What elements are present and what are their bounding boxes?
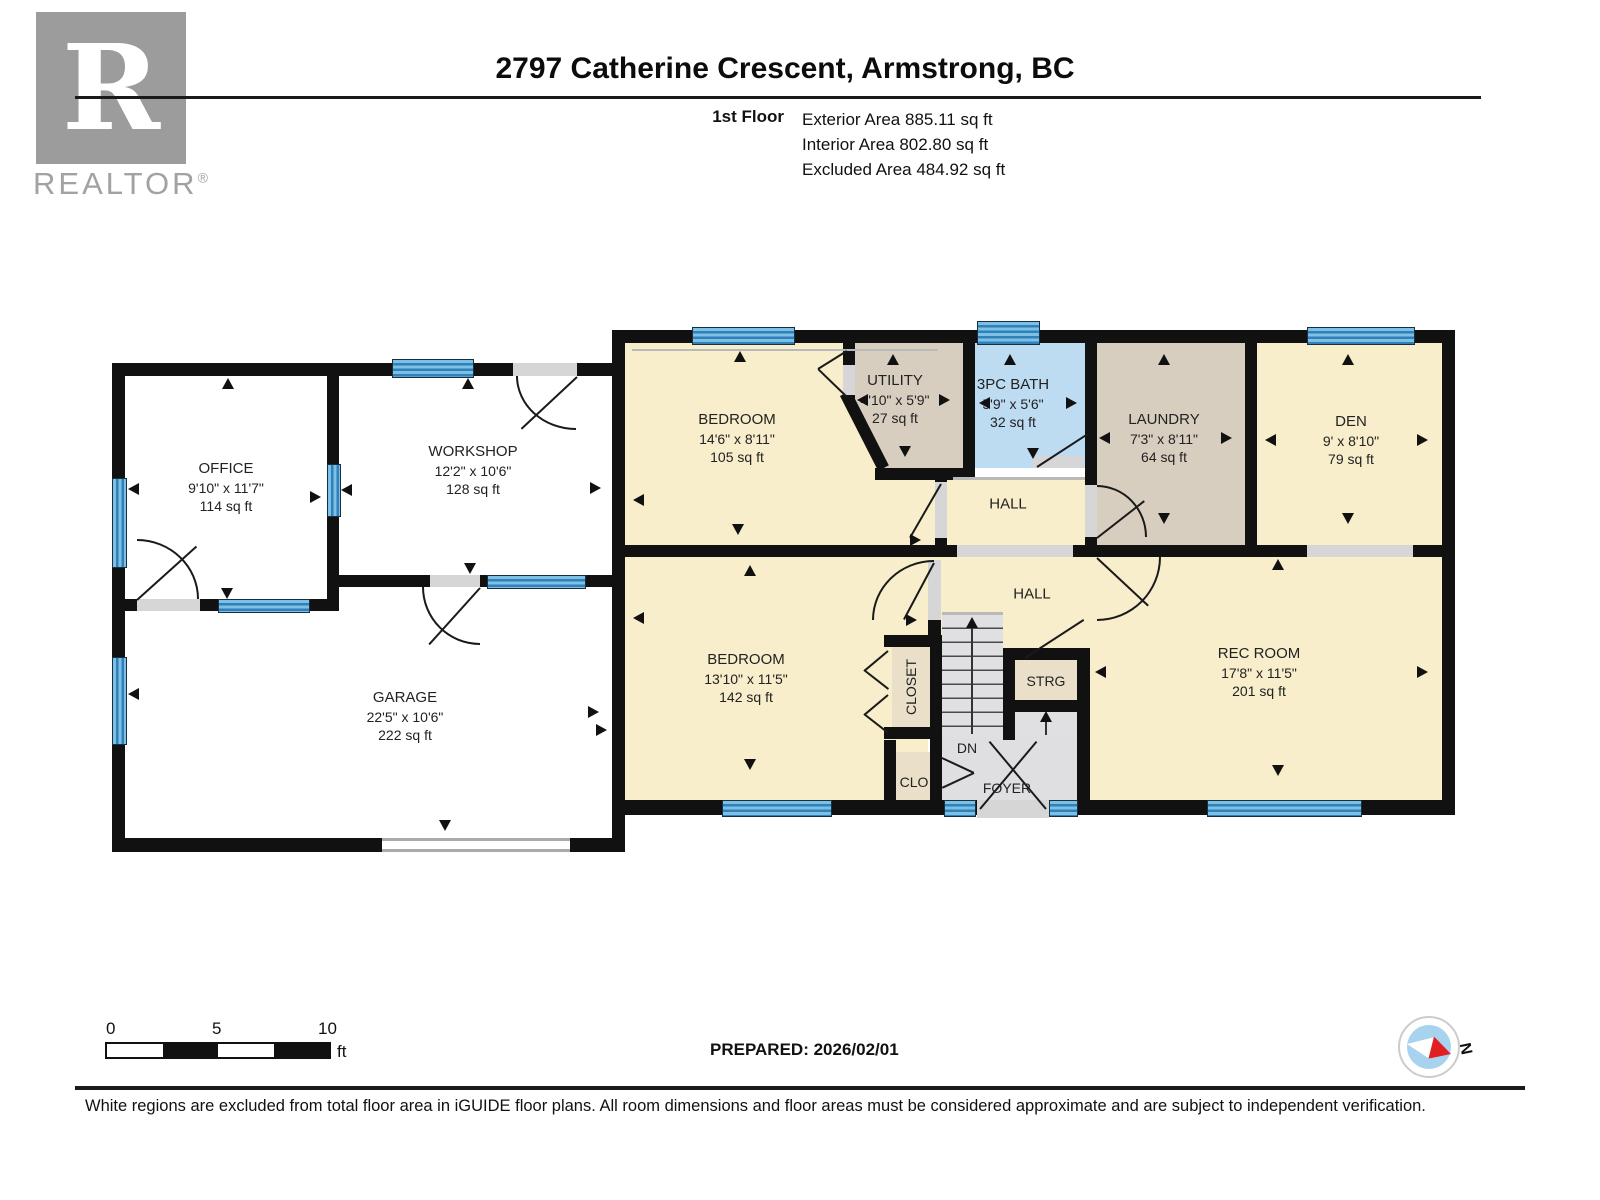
room-name: CLOSET (902, 659, 920, 715)
room-dims: 9' x 8'10" (1323, 432, 1379, 450)
room-name: DEN (1323, 412, 1379, 432)
room-label-clo: CLO (900, 773, 929, 791)
room-label-garage: GARAGE 22'5" x 10'6" 222 sq ft (367, 688, 444, 744)
room-name: HALL (1013, 584, 1051, 604)
room-label-foyer: FOYER (983, 779, 1031, 797)
room-label-hall-upper: HALL (989, 494, 1027, 514)
room-name: BEDROOM (698, 410, 776, 430)
realtor-logo-letter: R (62, 29, 160, 147)
room-name: FOYER (983, 779, 1031, 797)
window (327, 464, 341, 517)
dim-arrow-icon (633, 494, 644, 506)
door-opening (513, 363, 577, 376)
dim-arrow-icon (1272, 559, 1284, 570)
compass-icon (1398, 1016, 1460, 1078)
door-opening (137, 599, 200, 611)
landing-up-arrow-icon (1040, 711, 1052, 722)
scale-unit: ft (337, 1042, 346, 1062)
room-name: OFFICE (188, 459, 264, 479)
page-title: 2797 Catherine Crescent, Armstrong, BC (0, 52, 1570, 86)
dim-arrow-icon (857, 394, 868, 406)
dim-arrow-icon (1342, 513, 1354, 524)
scale-segment (218, 1044, 274, 1057)
compass-needle-tail (1403, 1027, 1455, 1067)
window (692, 327, 795, 345)
dim-arrow-icon (439, 820, 451, 831)
room-area: 201 sq ft (1218, 682, 1301, 700)
window (977, 321, 1040, 345)
dim-arrow-icon (939, 394, 950, 406)
window (1207, 800, 1362, 817)
room-name: HALL (989, 494, 1027, 514)
dim-arrow-icon (633, 612, 644, 624)
room-name: REC ROOM (1218, 644, 1301, 664)
room-area: 222 sq ft (367, 726, 444, 744)
ceiling-break (632, 349, 938, 351)
scale-tick-5: 5 (212, 1019, 221, 1039)
floor-plan: OFFICE 9'10" x 11'7" 114 sq ft WORKSHOP … (0, 0, 1600, 1200)
room-area: 105 sq ft (698, 448, 776, 466)
dim-arrow-icon (310, 491, 321, 503)
dim-arrow-icon (222, 378, 234, 389)
room-label-workshop: WORKSHOP 12'2" x 10'6" 128 sq ft (428, 442, 517, 498)
room-label-strg: STRG (1027, 672, 1066, 690)
dim-arrow-icon (1221, 432, 1232, 444)
room-label-hall-lower: HALL (1013, 584, 1051, 604)
room-label-bedroom1: BEDROOM 14'6" x 8'11" 105 sq ft (698, 410, 776, 466)
room-area: 32 sq ft (977, 413, 1049, 431)
dim-arrow-icon (899, 446, 911, 457)
dim-arrow-icon (744, 759, 756, 770)
wall (963, 330, 975, 480)
dim-arrow-icon (1272, 765, 1284, 776)
dim-arrow-icon (732, 524, 744, 535)
door-opening (1085, 485, 1097, 537)
dim-arrow-icon (1265, 434, 1276, 446)
stair-direction-line (971, 622, 973, 734)
footer-divider (75, 1086, 1525, 1090)
dim-arrow-icon (887, 354, 899, 365)
disclaimer-text: White regions are excluded from total fl… (85, 1097, 1515, 1116)
hall-edge (953, 477, 1085, 480)
room-area: 64 sq ft (1128, 448, 1199, 466)
dim-arrow-icon (1099, 432, 1110, 444)
dim-arrow-icon (596, 724, 607, 736)
dim-arrow-icon (1095, 666, 1106, 678)
scale-tick-10: 10 (318, 1019, 337, 1039)
room-dims: 13'10" x 11'5" (704, 670, 788, 688)
title-divider (75, 96, 1481, 99)
window (722, 800, 832, 817)
room-dims: 14'6" x 8'11" (698, 430, 776, 448)
room-label-den: DEN 9' x 8'10" 79 sq ft (1323, 412, 1379, 468)
room-dims: 17'8" x 11'5" (1218, 664, 1301, 682)
room-label-rec-room: REC ROOM 17'8" x 11'5" 201 sq ft (1218, 644, 1301, 700)
registered-mark: ® (198, 170, 211, 186)
door-opening (843, 365, 855, 395)
room-name: STRG (1027, 672, 1066, 690)
wall-opening (957, 545, 1073, 557)
room-dims: 7'3" x 8'11" (1128, 430, 1199, 448)
dim-arrow-icon (1004, 354, 1016, 365)
dim-arrow-icon (341, 484, 352, 496)
dim-arrow-icon (128, 483, 139, 495)
realtor-logo-text: REALTOR (33, 166, 198, 201)
wall (1245, 330, 1257, 557)
door-opening (430, 575, 480, 587)
window (487, 575, 586, 589)
dim-arrow-icon (734, 351, 746, 362)
dim-arrow-icon (910, 534, 921, 546)
dim-arrow-icon (1417, 434, 1428, 446)
wall (1442, 330, 1455, 815)
room-name: GARAGE (367, 688, 444, 708)
room-area: 128 sq ft (428, 480, 517, 498)
room-name: BEDROOM (704, 650, 788, 670)
stair-up-arrow-icon (966, 617, 978, 628)
realtor-logo-icon: R (36, 12, 186, 164)
room-dims: 12'2" x 10'6" (428, 462, 517, 480)
dim-arrow-icon (1158, 513, 1170, 524)
dim-arrow-icon (1417, 666, 1428, 678)
dim-arrow-icon (1342, 354, 1354, 365)
room-name: DN (957, 739, 977, 757)
scale-segment (274, 1044, 330, 1057)
dim-arrow-icon (744, 565, 756, 576)
dim-arrow-icon (128, 688, 139, 700)
scale-bar (105, 1042, 331, 1059)
dim-arrow-icon (1027, 448, 1039, 459)
wall (1003, 648, 1015, 740)
room-name: UTILITY (861, 371, 930, 391)
window (392, 359, 474, 378)
window (944, 800, 976, 817)
compass-needle-icon (1403, 1027, 1455, 1067)
room-label-office: OFFICE 9'10" x 11'7" 114 sq ft (188, 459, 264, 515)
room-name: CLO (900, 773, 929, 791)
wall-opening (1307, 545, 1413, 557)
dim-arrow-icon (1066, 397, 1077, 409)
room-label-utility: UTILITY 4'10" x 5'9" 27 sq ft (861, 371, 930, 427)
prepared-date: PREPARED: 2026/02/01 (710, 1040, 899, 1060)
room-label-laundry: LAUNDRY 7'3" x 8'11" 64 sq ft (1128, 410, 1199, 466)
window (112, 478, 127, 568)
dim-arrow-icon (588, 706, 599, 718)
room-area: 79 sq ft (1323, 450, 1379, 468)
dim-arrow-icon (906, 614, 917, 626)
floorplan-page: R REALTOR® 2797 Catherine Crescent, Arms… (0, 0, 1600, 1200)
realtor-logo-label: REALTOR® (33, 166, 211, 202)
window (1049, 800, 1078, 817)
wall (884, 740, 896, 800)
room-label-closet: CLOSET (902, 659, 920, 715)
front-door-opening (977, 800, 1049, 818)
scale-segment (107, 1044, 163, 1057)
dim-arrow-icon (462, 378, 474, 389)
window (112, 657, 127, 745)
room-name: 3PC BATH (977, 375, 1049, 395)
room-dims: 9'10" x 11'7" (188, 479, 264, 497)
scale-tick-0: 0 (106, 1019, 115, 1039)
wall (612, 330, 625, 852)
dim-arrow-icon (979, 397, 990, 409)
room-area: 27 sq ft (861, 409, 930, 427)
scale-segment (163, 1044, 219, 1057)
dim-arrow-icon (590, 482, 601, 494)
window (1307, 327, 1415, 345)
room-area: 114 sq ft (188, 497, 264, 515)
window (218, 599, 310, 613)
wall (930, 637, 942, 800)
room-dims: 4'10" x 5'9" (861, 391, 930, 409)
room-name: WORKSHOP (428, 442, 517, 462)
room-label-dn: DN (957, 739, 977, 757)
room-dims: 22'5" x 10'6" (367, 708, 444, 726)
room-name: LAUNDRY (1128, 410, 1199, 430)
dim-arrow-icon (221, 588, 233, 599)
garage-door (382, 838, 570, 852)
room-label-bedroom2: BEDROOM 13'10" x 11'5" 142 sq ft (704, 650, 788, 706)
wall (1077, 648, 1090, 815)
dim-arrow-icon (464, 563, 476, 574)
room-area: 142 sq ft (704, 688, 788, 706)
dim-arrow-icon (1158, 354, 1170, 365)
